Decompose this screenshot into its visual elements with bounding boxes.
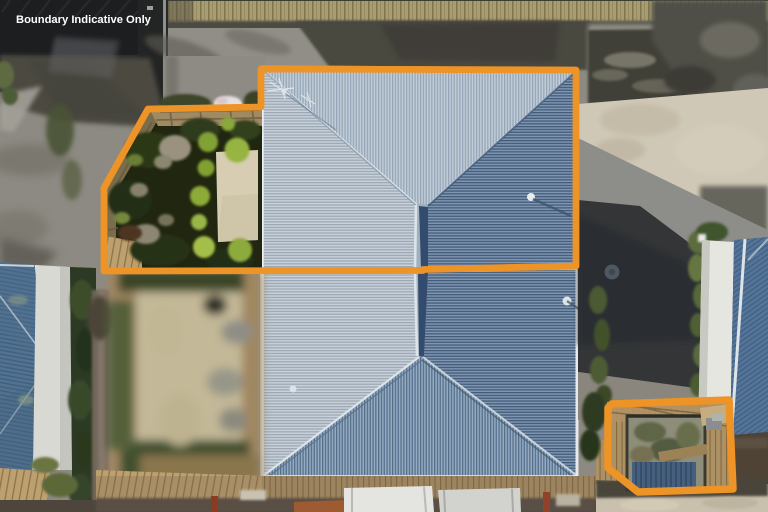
svg-text:Boundary Indicative Only: Boundary Indicative Only — [16, 14, 152, 26]
